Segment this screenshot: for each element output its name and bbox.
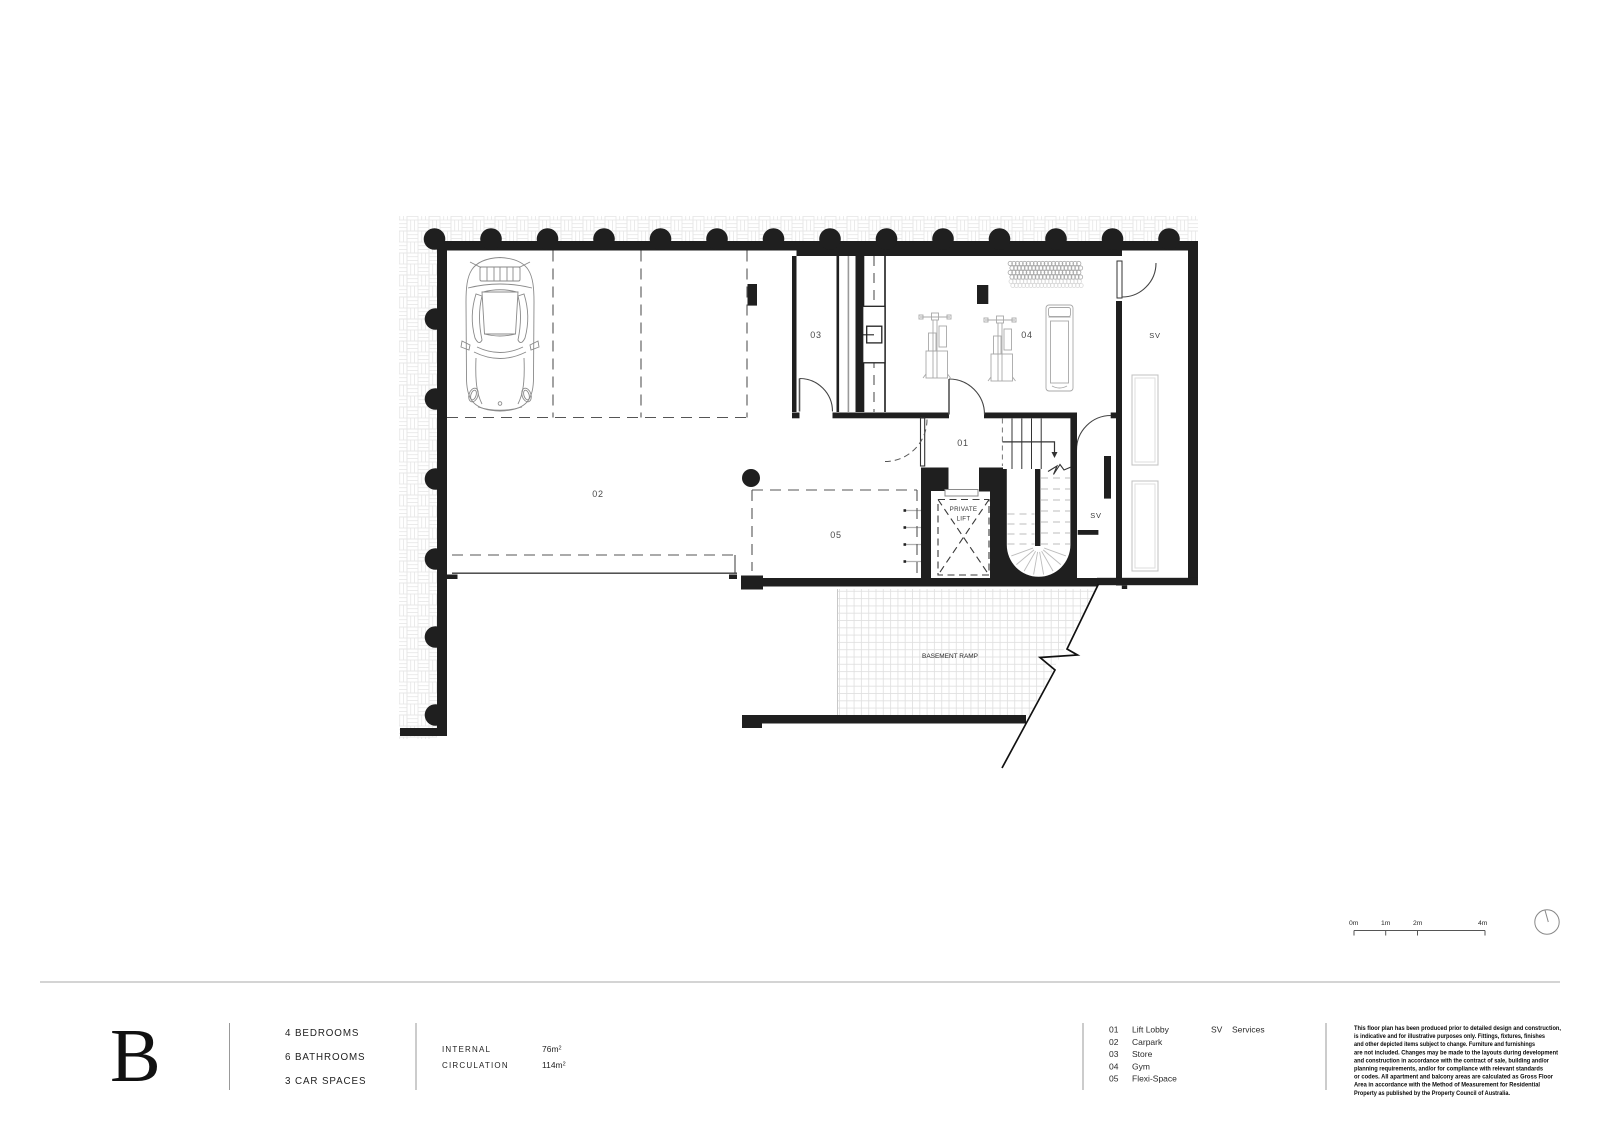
svg-text:01: 01 <box>1109 1025 1119 1035</box>
svg-text:BASEMENT RAMP: BASEMENT RAMP <box>922 653 978 660</box>
svg-text:Services: Services <box>1232 1025 1265 1035</box>
svg-text:PRIVATE: PRIVATE <box>950 506 978 513</box>
svg-text:SV: SV <box>1090 511 1102 520</box>
svg-text:SV: SV <box>1149 331 1161 340</box>
svg-text:02: 02 <box>1109 1037 1119 1047</box>
svg-text:are not included. Changes may: are not included. Changes may be made to… <box>1354 1049 1559 1056</box>
svg-text:Gym: Gym <box>1132 1061 1150 1071</box>
svg-text:and construction in accordance: and construction in accordance with the … <box>1354 1057 1549 1064</box>
svg-text:0m: 0m <box>1349 920 1359 927</box>
svg-text:04: 04 <box>1021 330 1033 340</box>
svg-text:CIRCULATION: CIRCULATION <box>442 1061 509 1070</box>
svg-text:LIFT: LIFT <box>957 516 971 523</box>
svg-text:4 BEDROOMS: 4 BEDROOMS <box>285 1028 359 1039</box>
svg-text:05: 05 <box>830 530 842 540</box>
svg-text:Store: Store <box>1132 1049 1153 1059</box>
svg-text:and other depicted items subje: and other depicted items subject to chan… <box>1354 1041 1535 1048</box>
svg-text:03: 03 <box>810 330 822 340</box>
svg-text:is indicative and for illustra: is indicative and for illustrative purpo… <box>1354 1033 1545 1040</box>
svg-text:04: 04 <box>1109 1061 1119 1071</box>
svg-text:Area in accordance with the Me: Area in accordance with the Method of Me… <box>1354 1082 1540 1089</box>
svg-text:INTERNAL: INTERNAL <box>442 1045 491 1054</box>
svg-text:114m2: 114m2 <box>542 1060 566 1070</box>
svg-text:B: B <box>110 1014 161 1098</box>
svg-text:3 CAR SPACES: 3 CAR SPACES <box>285 1076 366 1087</box>
svg-text:This floor plan has been produ: This floor plan has been produced prior … <box>1354 1025 1561 1032</box>
svg-text:or codes. All apartment and ba: or codes. All apartment and balcony area… <box>1354 1074 1553 1081</box>
svg-text:Lift Lobby: Lift Lobby <box>1132 1025 1170 1035</box>
svg-text:planning requirements, and/or: planning requirements, and/or for compli… <box>1354 1066 1543 1073</box>
svg-text:2m: 2m <box>1413 920 1423 927</box>
svg-text:6 BATHROOMS: 6 BATHROOMS <box>285 1052 365 1063</box>
svg-text:Flexi-Space: Flexi-Space <box>1132 1074 1177 1084</box>
svg-text:03: 03 <box>1109 1049 1119 1059</box>
svg-text:1m: 1m <box>1381 920 1391 927</box>
svg-text:Carpark: Carpark <box>1132 1037 1163 1047</box>
svg-text:4m: 4m <box>1478 920 1488 927</box>
svg-text:02: 02 <box>592 489 604 499</box>
svg-text:01: 01 <box>957 438 969 448</box>
svg-text:05: 05 <box>1109 1074 1119 1084</box>
svg-text:Property as published by the P: Property as published by the Property Co… <box>1354 1090 1510 1097</box>
svg-text:SV: SV <box>1211 1025 1223 1035</box>
